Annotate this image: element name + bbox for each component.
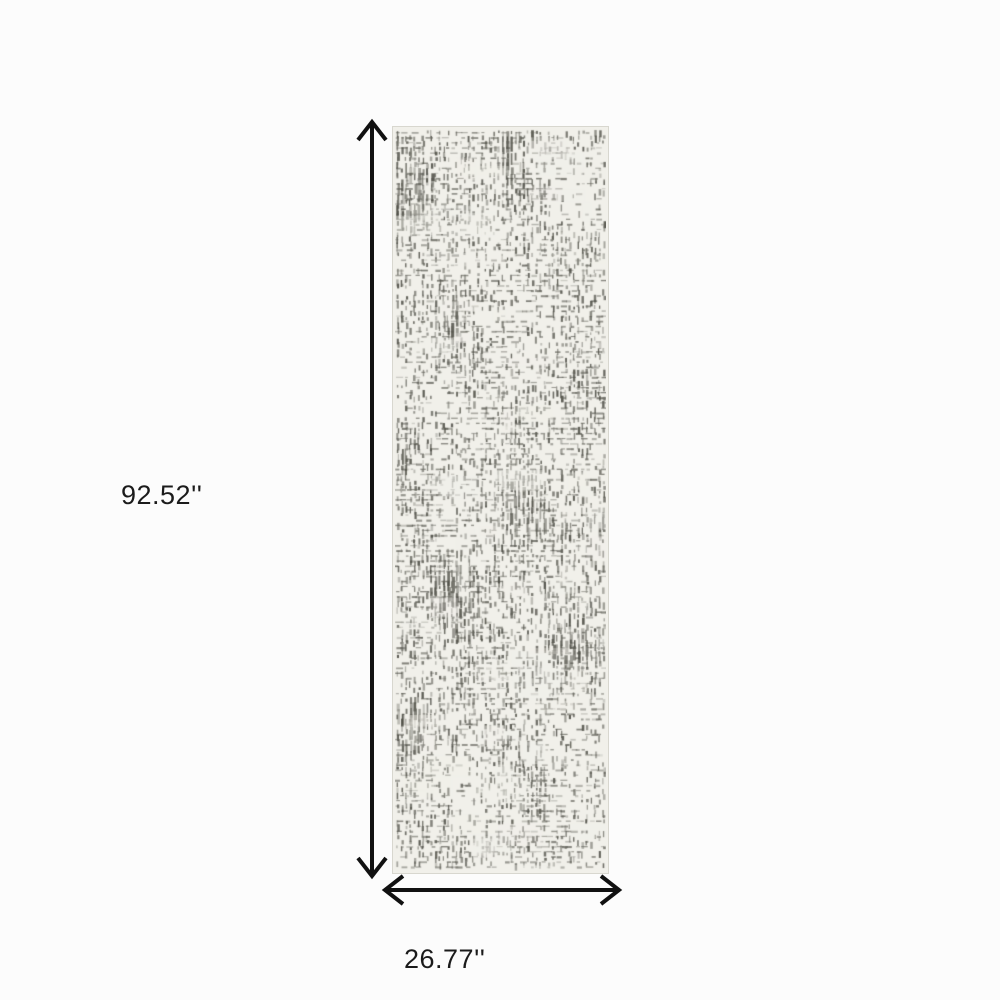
rug-texture bbox=[395, 129, 606, 871]
rug-image bbox=[392, 126, 609, 874]
width-dimension-arrow-icon bbox=[377, 872, 627, 908]
height-dimension-arrow-icon bbox=[350, 114, 394, 884]
product-dimension-diagram: 92.52'' 26.77'' bbox=[0, 0, 1000, 1000]
width-dimension-label: 26.77'' bbox=[404, 946, 485, 973]
height-dimension-label: 92.52'' bbox=[121, 482, 202, 509]
